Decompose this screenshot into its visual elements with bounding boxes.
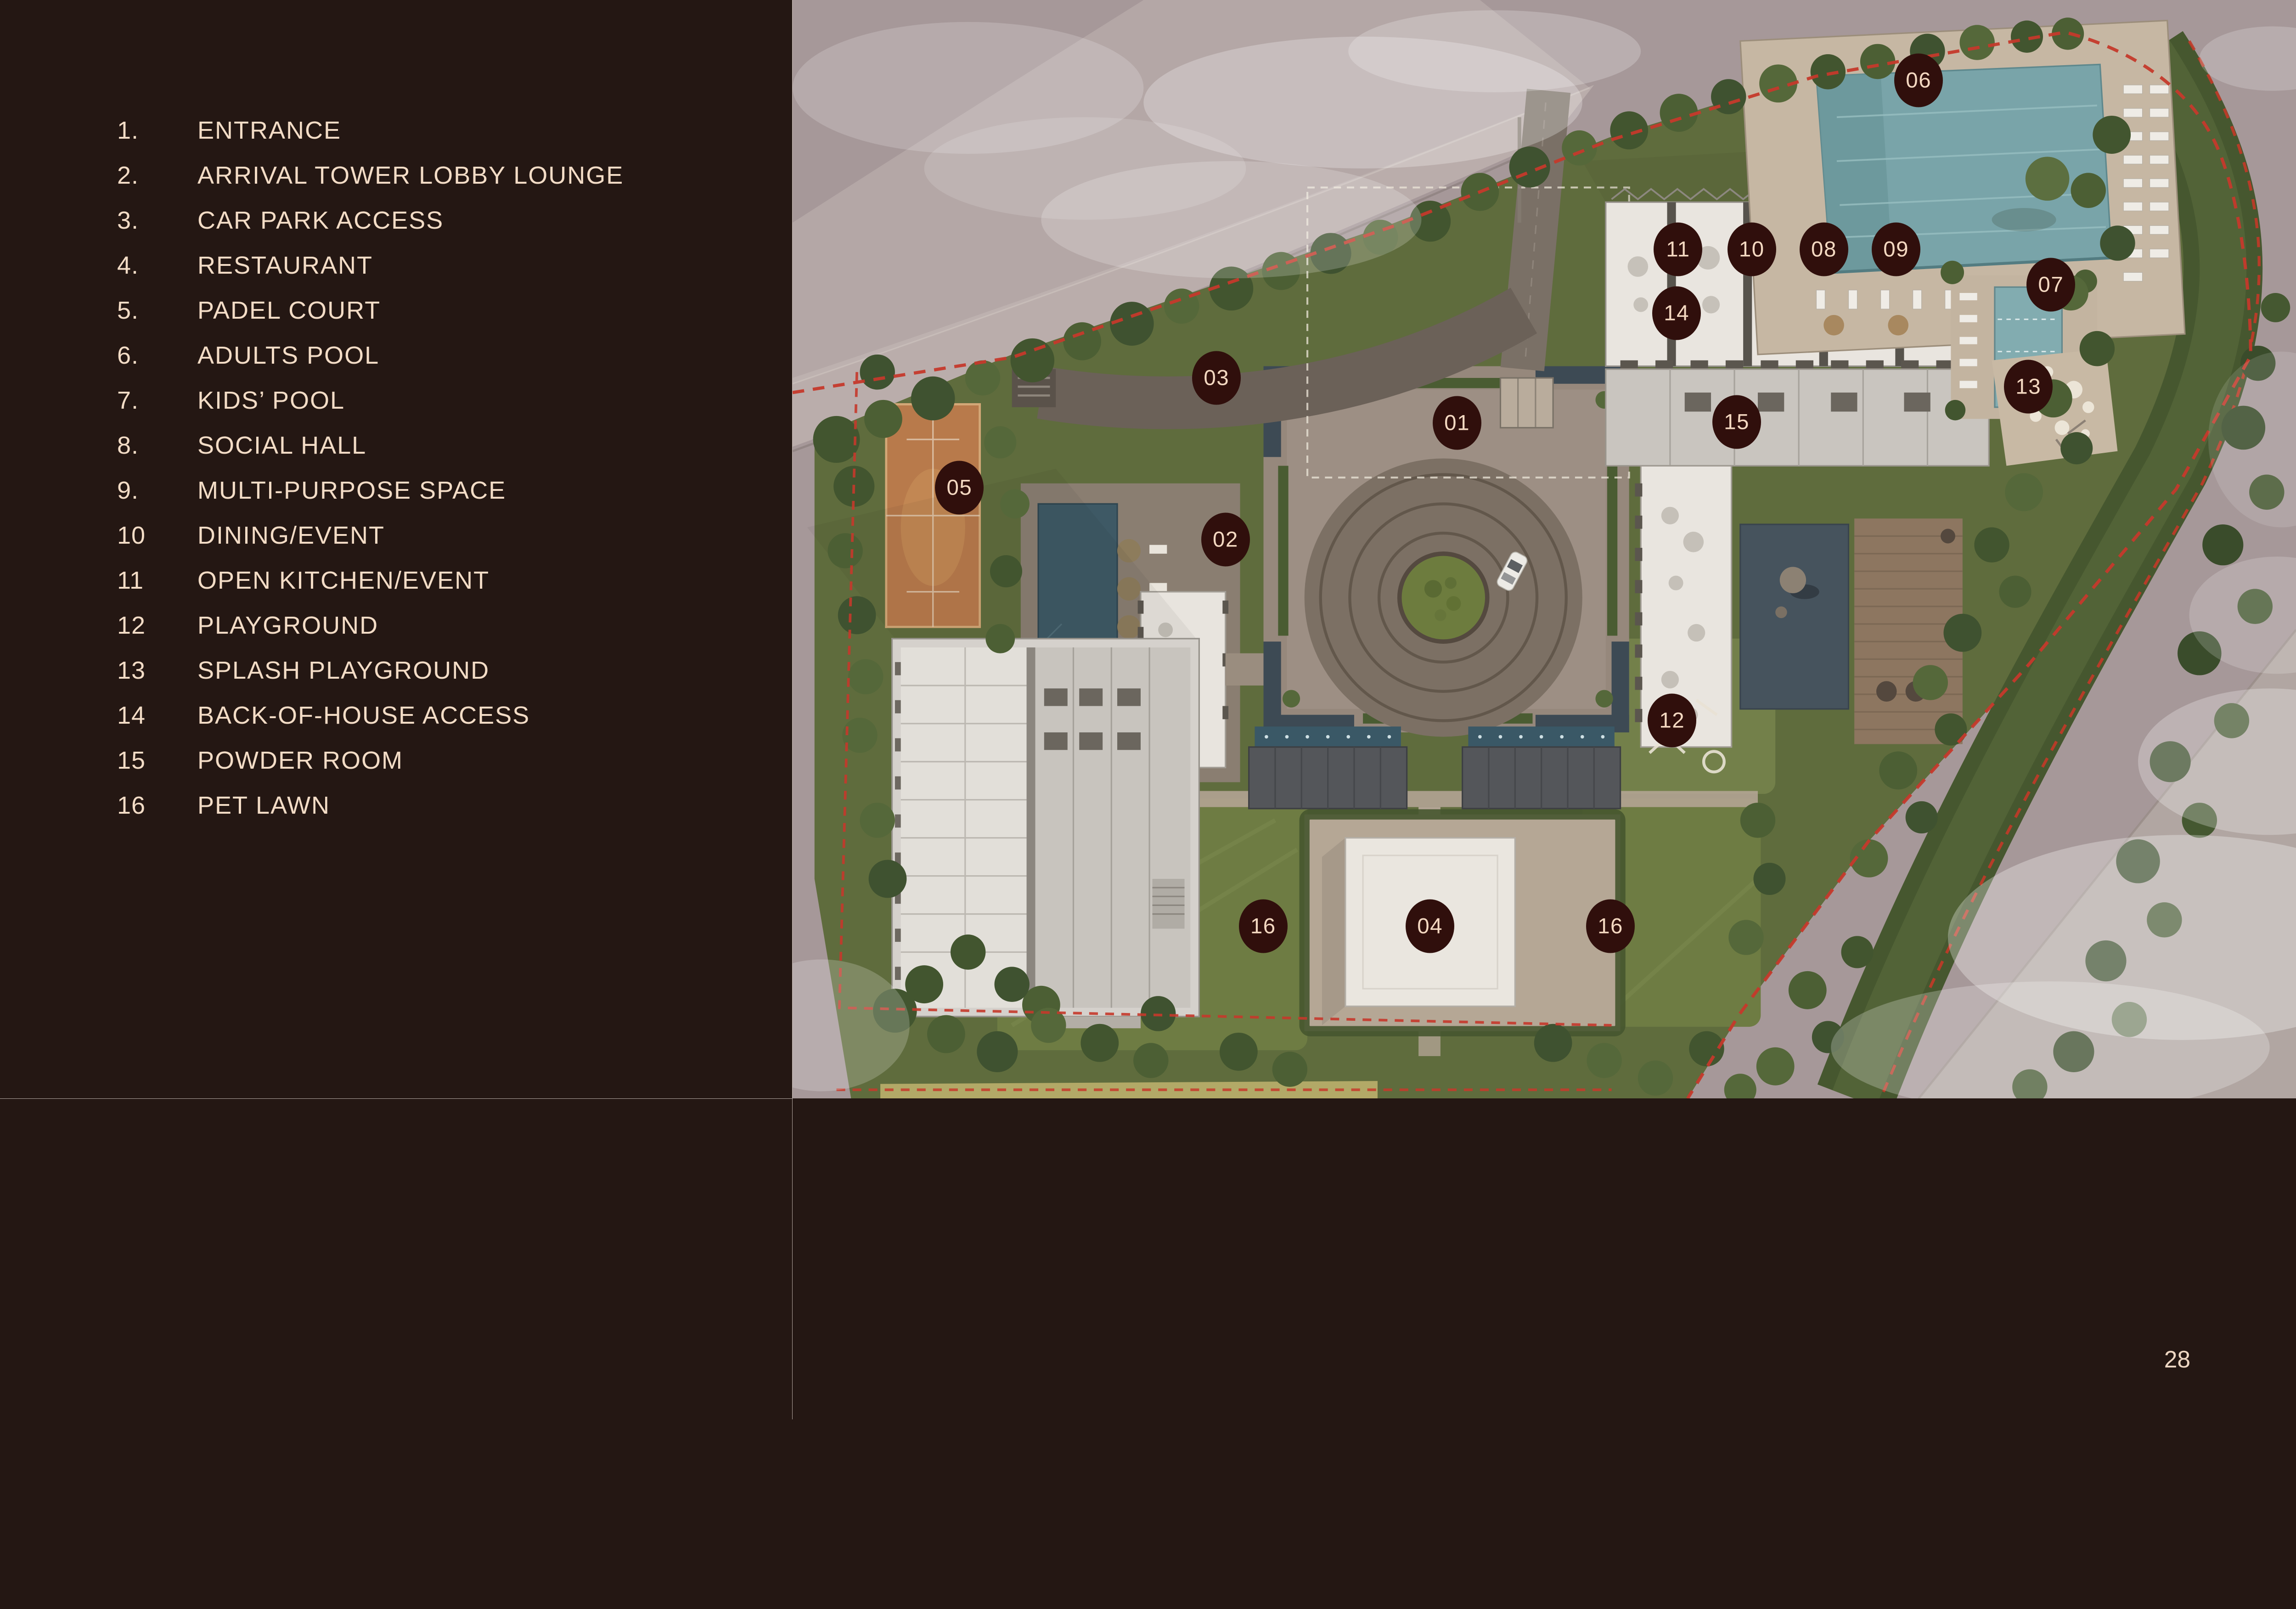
legend-item: 16PET LAWN	[117, 783, 624, 828]
legend-item: 14BACK-OF-HOUSE ACCESS	[117, 693, 624, 738]
map-marker-14: 14	[1652, 286, 1701, 340]
legend-item-label: ENTRANCE	[197, 116, 341, 145]
map-marker-04: 04	[1406, 899, 1454, 953]
legend-item-number: 10	[117, 521, 197, 550]
map-marker-08: 08	[1800, 223, 1848, 276]
legend-item-number: 11	[117, 566, 197, 595]
brochure-page: 1.ENTRANCE2.ARRIVAL TOWER LOBBY LOUNGE3.…	[0, 0, 2296, 1419]
map-marker-11: 11	[1654, 223, 1702, 276]
legend-list: 1.ENTRANCE2.ARRIVAL TOWER LOBBY LOUNGE3.…	[117, 108, 624, 828]
map-marker-16: 16	[1239, 899, 1288, 953]
legend-item-label: SPLASH PLAYGROUND	[197, 656, 490, 685]
legend-item-number: 12	[117, 611, 197, 640]
legend-item-number: 9.	[117, 476, 197, 505]
map-marker-10: 10	[1728, 223, 1776, 276]
map-marker-13: 13	[2004, 360, 2053, 414]
amenities-legend: 1.ENTRANCE2.ARRIVAL TOWER LOBBY LOUNGE3.…	[117, 108, 624, 828]
legend-item-label: DINING/EVENT	[197, 521, 385, 550]
vertical-divider	[792, 1098, 793, 1419]
legend-item-label: PADEL COURT	[197, 296, 381, 325]
legend-item: 11OPEN KITCHEN/EVENT	[117, 558, 624, 603]
legend-item-number: 3.	[117, 206, 197, 235]
map-marker-15: 15	[1712, 395, 1761, 449]
legend-item: 9.MULTI-PURPOSE SPACE	[117, 468, 624, 513]
legend-item-label: PLAYGROUND	[197, 611, 378, 640]
map-marker-02: 02	[1201, 512, 1250, 566]
legend-item: 7.KIDS’ POOL	[117, 378, 624, 423]
marker-layer: 0102030405060708091011121314151616	[793, 0, 2296, 1098]
legend-item: 15POWDER ROOM	[117, 738, 624, 783]
map-marker-05: 05	[935, 461, 984, 515]
legend-item-number: 13	[117, 656, 197, 685]
legend-item-label: PET LAWN	[197, 791, 330, 820]
legend-item-number: 14	[117, 701, 197, 730]
legend-item: 12PLAYGROUND	[117, 603, 624, 648]
legend-item-label: BACK-OF-HOUSE ACCESS	[197, 701, 530, 730]
legend-item-number: 6.	[117, 341, 197, 370]
legend-item: 1.ENTRANCE	[117, 108, 624, 153]
map-marker-03: 03	[1192, 351, 1241, 405]
legend-item-label: RESTAURANT	[197, 251, 373, 280]
legend-item: 10DINING/EVENT	[117, 513, 624, 558]
legend-item-number: 1.	[117, 116, 197, 145]
legend-item: 2.ARRIVAL TOWER LOBBY LOUNGE	[117, 153, 624, 198]
legend-item-label: CAR PARK ACCESS	[197, 206, 444, 235]
legend-item: 5.PADEL COURT	[117, 288, 624, 333]
site-plan-map: 0102030405060708091011121314151616	[792, 0, 2296, 1098]
legend-item-number: 16	[117, 791, 197, 820]
legend-item-number: 15	[117, 746, 197, 775]
legend-item-number: 4.	[117, 251, 197, 280]
legend-item: 4.RESTAURANT	[117, 243, 624, 288]
legend-item: 6.ADULTS POOL	[117, 333, 624, 378]
legend-item-number: 8.	[117, 431, 197, 460]
legend-item-label: MULTI-PURPOSE SPACE	[197, 476, 506, 505]
horizontal-divider	[0, 1098, 792, 1099]
legend-item-number: 2.	[117, 161, 197, 190]
legend-item: 13SPLASH PLAYGROUND	[117, 648, 624, 693]
map-marker-16: 16	[1586, 899, 1635, 953]
legend-item-label: ADULTS POOL	[197, 341, 379, 370]
legend-item-label: OPEN KITCHEN/EVENT	[197, 566, 490, 595]
legend-item-label: ARRIVAL TOWER LOBBY LOUNGE	[197, 161, 624, 190]
legend-item-label: KIDS’ POOL	[197, 386, 345, 415]
map-marker-09: 09	[1872, 223, 1920, 276]
legend-item-label: POWDER ROOM	[197, 746, 403, 775]
map-marker-01: 01	[1433, 396, 1481, 450]
legend-item-number: 7.	[117, 386, 197, 415]
page-number: 28	[2164, 1345, 2190, 1373]
legend-item: 3.CAR PARK ACCESS	[117, 198, 624, 243]
map-marker-12: 12	[1648, 694, 1696, 748]
map-marker-06: 06	[1894, 53, 1943, 107]
legend-item-number: 5.	[117, 296, 197, 325]
map-marker-07: 07	[2026, 258, 2075, 311]
legend-item-label: SOCIAL HALL	[197, 431, 366, 460]
legend-item: 8.SOCIAL HALL	[117, 423, 624, 468]
